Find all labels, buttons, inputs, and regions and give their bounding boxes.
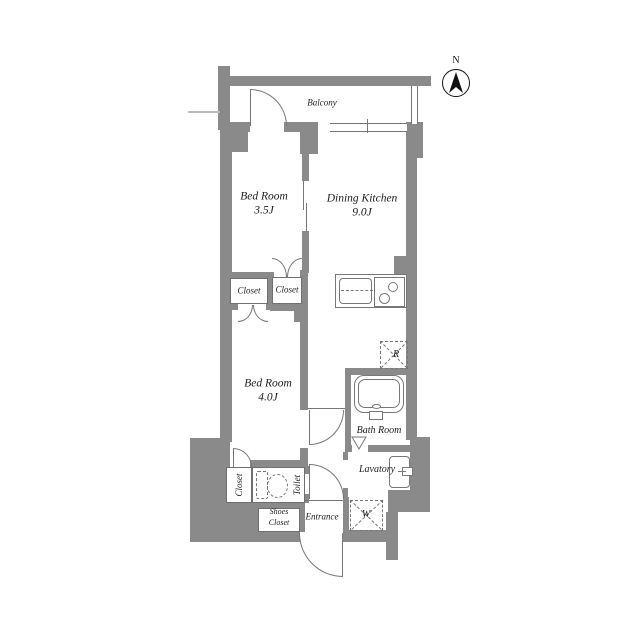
- bathtub-drain: [372, 404, 381, 409]
- wall-right: [406, 122, 417, 440]
- closet-door-arc: [233, 448, 252, 467]
- dk-name: Dining Kitchen: [327, 193, 398, 205]
- bedroom1-name: Bed Room: [240, 191, 288, 203]
- sliding-door-line-b: [306, 203, 307, 232]
- wall-balcony-rail: [228, 76, 431, 86]
- washer-label: W: [362, 509, 370, 522]
- toilet-bowl: [267, 474, 288, 498]
- washbasin-tap-line: [398, 471, 406, 472]
- wall-bed2-bottom: [250, 460, 308, 467]
- exterior-boundary-line: [188, 111, 220, 113]
- sliding-door-line-a: [303, 181, 304, 210]
- wall-se-bottom: [388, 490, 430, 512]
- balcony-side-window: [411, 86, 418, 124]
- compass-north-label: N: [452, 55, 459, 68]
- wall-entry-stub: [386, 512, 398, 560]
- bathroom-label: Bath Room: [357, 425, 402, 438]
- entrance-door-arc: [299, 533, 343, 577]
- closet-left-door-left-arc: [238, 305, 253, 322]
- dk-balcony-window: [330, 123, 407, 132]
- shoes-closet-line2: Closet: [269, 518, 289, 527]
- dk-size: 9.0J: [352, 207, 371, 219]
- kitchen-stove: [374, 277, 405, 307]
- bedroom1-label: Bed Room 3.5J: [240, 190, 288, 219]
- toilet-label: Toilet: [292, 475, 302, 495]
- wall-rcloset-step: [294, 309, 308, 322]
- hall-opening-line: [308, 408, 345, 409]
- wall-entrance-lavatory: [343, 497, 349, 532]
- bedroom2-name: Bed Room: [244, 378, 292, 390]
- bathroom-fold-door-icon: [351, 436, 367, 450]
- wall-bottom-left-block2: [226, 503, 258, 542]
- bedroom1-size: 3.5J: [254, 205, 273, 217]
- wall-right-pillar-top: [406, 122, 423, 158]
- entrance-step-line: [305, 500, 343, 501]
- kitchen-dash-line: [341, 290, 373, 291]
- balcony-label: Balcony: [307, 97, 337, 108]
- bedroom2-label: Bed Room 4.0J: [244, 377, 292, 406]
- dk-window-tick: [367, 119, 368, 133]
- closet-left-label: Closet: [237, 285, 260, 296]
- refrigerator-label: R: [393, 349, 399, 362]
- stove-burner-2: [379, 293, 390, 304]
- compass-needle-icon: [442, 69, 470, 97]
- wall-bath-top: [345, 368, 412, 375]
- kitchen-sink: [339, 278, 372, 304]
- lavatory-label: Lavatory: [359, 464, 395, 477]
- closet-right-door-left-arc: [272, 258, 287, 277]
- wall-bed1-pillar: [230, 130, 248, 152]
- entrance-label: Entrance: [306, 511, 339, 522]
- wall-bath-bottom-r: [368, 445, 412, 452]
- closet-right-label: Closet: [275, 284, 298, 295]
- shoes-closet-line1: Shoes: [270, 507, 289, 516]
- wall-divider-top: [302, 131, 309, 181]
- bathtub-step: [369, 411, 383, 420]
- wall-lav-frame-top: [343, 452, 348, 460]
- wall-divider-bottom: [302, 231, 309, 273]
- stove-burner-1: [388, 282, 398, 292]
- bedroom2-door-arc: [309, 410, 344, 445]
- closet-left-door-right-arc: [253, 305, 268, 322]
- closet-right-door-right-arc: [287, 258, 302, 277]
- closet-lower-label: Closet: [234, 473, 244, 496]
- wall-lcloset-bottom-l: [228, 303, 238, 310]
- wall-bottom-left-block: [190, 438, 230, 542]
- wall-entrance-left: [300, 505, 305, 532]
- balcony-door-arc: [250, 89, 287, 126]
- bedroom2-size: 4.0J: [258, 392, 277, 404]
- toilet-door-arc: [309, 464, 344, 499]
- wall-right-pillar-mid: [394, 256, 417, 274]
- shoes-closet-label: Shoes Closet: [269, 507, 289, 529]
- dk-label: Dining Kitchen 9.0J: [327, 192, 398, 221]
- floor-plan: N Balcony Bed Room 3.5J Dining Kitchen 9…: [0, 0, 640, 640]
